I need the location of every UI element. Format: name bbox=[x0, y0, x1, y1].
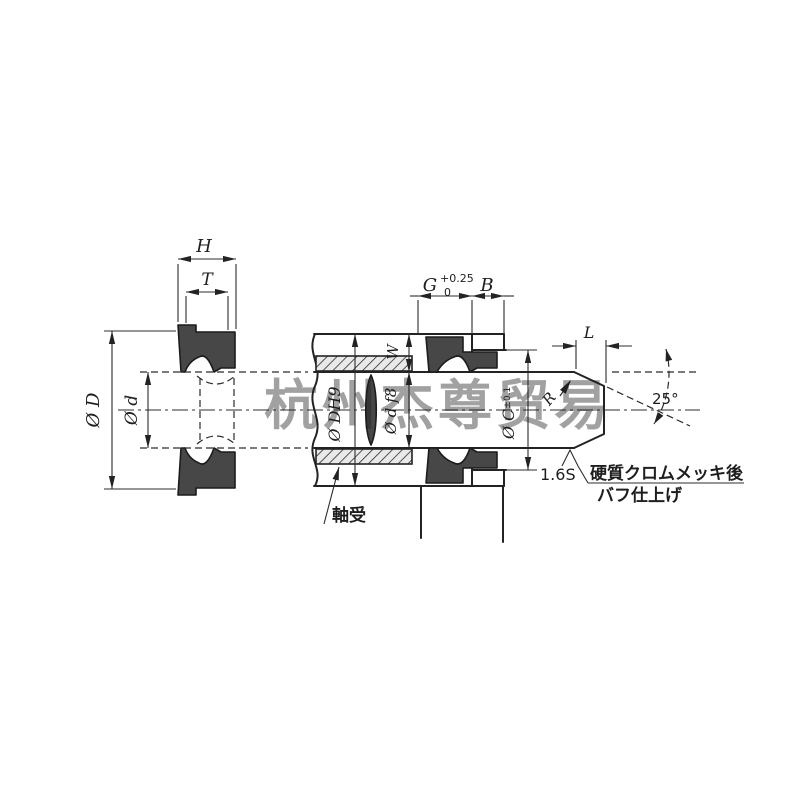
finish-note-line2: バフ仕上げ bbox=[597, 485, 683, 506]
dim-label-l: L bbox=[583, 323, 595, 342]
dim-label-h: H bbox=[195, 236, 212, 257]
dim-label-w: W bbox=[384, 343, 402, 360]
bearing-label: 軸受 bbox=[332, 505, 366, 526]
dim-label-g: G bbox=[423, 275, 437, 296]
dim-label-outer-dia: Ø D bbox=[83, 392, 104, 428]
seal-installation-drawing: H T Ø D Ø d bbox=[0, 0, 800, 800]
dim-label-g-tol-lower: 0 bbox=[444, 286, 451, 299]
dim-label-inner-dia: Ø d bbox=[122, 395, 142, 426]
bearing-hatch-lower bbox=[316, 449, 412, 464]
dim-label-t: T bbox=[201, 270, 214, 290]
surface-finish-value: 1.6S bbox=[540, 465, 576, 484]
dim-label-angle: 25° bbox=[652, 390, 679, 408]
dim-label-b: B bbox=[479, 275, 493, 296]
technical-drawing-sheet: H T Ø D Ø d bbox=[0, 0, 800, 800]
finish-note-line1: 硬質クロムメッキ後 bbox=[590, 463, 744, 484]
watermark-text: 杭州杰尊贸易 bbox=[264, 374, 612, 437]
dim-label-g-tol-upper: +0.25 bbox=[440, 272, 474, 285]
